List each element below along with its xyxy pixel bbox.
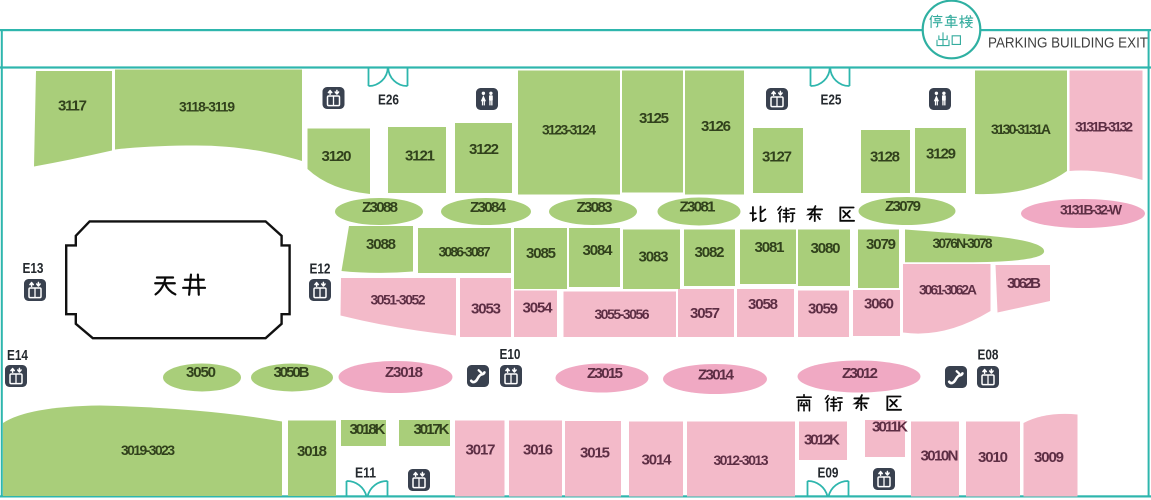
svg-text:3076N-3078: 3076N-3078 bbox=[933, 236, 993, 251]
svg-text:3016: 3016 bbox=[523, 441, 553, 458]
svg-text:E08: E08 bbox=[978, 346, 999, 363]
svg-text:3061-3062A: 3061-3062A bbox=[919, 283, 977, 298]
svg-text:E25: E25 bbox=[821, 91, 842, 108]
svg-text:E26: E26 bbox=[378, 91, 399, 108]
svg-text:3125: 3125 bbox=[639, 110, 669, 127]
svg-text:3120: 3120 bbox=[322, 148, 352, 165]
svg-text:3014: 3014 bbox=[642, 451, 673, 468]
svg-text:3085: 3085 bbox=[526, 245, 556, 262]
svg-text:Z3084: Z3084 bbox=[470, 199, 507, 216]
svg-text:3122: 3122 bbox=[469, 141, 499, 158]
svg-text:3011K: 3011K bbox=[872, 418, 908, 435]
svg-text:Z3081: Z3081 bbox=[680, 198, 716, 215]
svg-text:3050: 3050 bbox=[186, 364, 216, 381]
svg-text:Z3018: Z3018 bbox=[385, 364, 423, 381]
svg-text:Z3014: Z3014 bbox=[698, 366, 735, 383]
svg-text:Z3012: Z3012 bbox=[842, 365, 878, 382]
svg-text:3082: 3082 bbox=[695, 244, 725, 261]
svg-text:3080: 3080 bbox=[811, 240, 841, 257]
svg-text:3131B-3132: 3131B-3132 bbox=[1075, 120, 1133, 135]
svg-text:3062B: 3062B bbox=[1007, 275, 1041, 292]
svg-text:3088: 3088 bbox=[366, 236, 396, 253]
svg-text:3129: 3129 bbox=[926, 145, 956, 162]
svg-text:E10: E10 bbox=[500, 346, 521, 363]
svg-text:3123-3124: 3123-3124 bbox=[542, 123, 596, 138]
svg-text:3057: 3057 bbox=[690, 305, 720, 322]
svg-text:3121: 3121 bbox=[405, 148, 435, 165]
svg-text:3009: 3009 bbox=[1034, 449, 1064, 466]
svg-text:3059: 3059 bbox=[808, 300, 838, 317]
svg-text:3128: 3128 bbox=[870, 148, 900, 165]
svg-text:PARKING BUILDING EXIT: PARKING BUILDING EXIT bbox=[988, 36, 1148, 52]
svg-text:3017: 3017 bbox=[466, 441, 496, 458]
svg-text:3017K: 3017K bbox=[414, 421, 450, 438]
svg-text:3118-3119: 3118-3119 bbox=[179, 99, 235, 114]
svg-text:3018: 3018 bbox=[297, 443, 327, 460]
svg-text:3117: 3117 bbox=[58, 97, 87, 114]
svg-text:3051-3052: 3051-3052 bbox=[371, 293, 426, 308]
svg-text:3130-3131A: 3130-3131A bbox=[991, 122, 1051, 137]
svg-text:E12: E12 bbox=[310, 260, 331, 277]
svg-text:Z3079: Z3079 bbox=[885, 198, 921, 215]
svg-text:3058: 3058 bbox=[748, 296, 778, 313]
svg-text:3086-3087: 3086-3087 bbox=[439, 245, 491, 260]
svg-text:3012K: 3012K bbox=[804, 431, 840, 448]
svg-text:Z3088: Z3088 bbox=[362, 199, 398, 216]
svg-text:3081: 3081 bbox=[755, 239, 785, 256]
svg-text:E09: E09 bbox=[818, 464, 839, 481]
svg-text:3131B-32-W: 3131B-32-W bbox=[1060, 202, 1123, 217]
svg-text:E13: E13 bbox=[23, 260, 44, 277]
svg-text:3010: 3010 bbox=[978, 449, 1008, 466]
svg-text:3018K: 3018K bbox=[350, 421, 386, 438]
svg-text:3054: 3054 bbox=[523, 299, 554, 316]
svg-text:3079: 3079 bbox=[866, 236, 896, 253]
svg-text:E11: E11 bbox=[355, 464, 376, 481]
svg-text:3012-3013: 3012-3013 bbox=[714, 453, 769, 468]
svg-text:3010N: 3010N bbox=[921, 447, 959, 464]
svg-text:3015: 3015 bbox=[580, 444, 610, 461]
svg-text:3053: 3053 bbox=[471, 300, 501, 317]
svg-text:3084: 3084 bbox=[583, 242, 614, 259]
svg-text:3126: 3126 bbox=[701, 118, 731, 135]
svg-text:3083: 3083 bbox=[639, 248, 669, 265]
svg-text:3060: 3060 bbox=[864, 295, 894, 312]
svg-text:3019-3023: 3019-3023 bbox=[121, 443, 175, 458]
svg-text:E14: E14 bbox=[7, 347, 29, 364]
svg-text:Z3015: Z3015 bbox=[587, 365, 623, 382]
svg-text:3127: 3127 bbox=[762, 149, 792, 166]
svg-text:3050B: 3050B bbox=[274, 364, 310, 381]
svg-text:3055-3056: 3055-3056 bbox=[595, 307, 650, 322]
svg-text:Z3083: Z3083 bbox=[577, 199, 613, 216]
